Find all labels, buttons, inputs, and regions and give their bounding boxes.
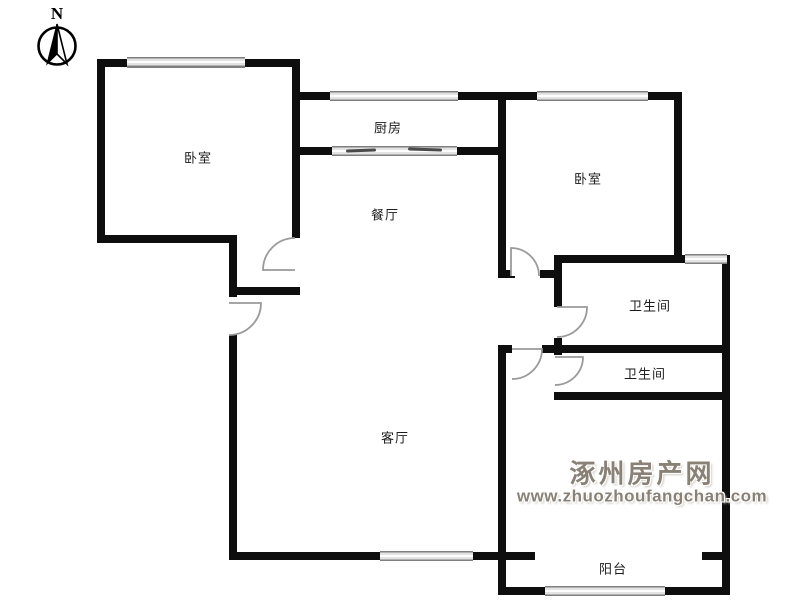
door-arc-dining-vestibule	[263, 238, 295, 270]
compass: N	[30, 2, 90, 87]
room-label-bathroom-top: 卫生间	[629, 296, 671, 315]
door-arc-hall	[512, 349, 542, 379]
wall-segment	[498, 270, 515, 278]
wall-segment	[722, 255, 730, 595]
door-arc-bathroom-top	[557, 307, 587, 337]
floor-plan: 卧室 厨房 餐厅 卧室 卫生间 卫生间 客厅 阳台 涿州房产网 www.zhuo…	[0, 0, 800, 600]
door-arc-bedroom-right	[511, 248, 539, 276]
window	[685, 254, 727, 264]
wall-segment	[542, 345, 730, 353]
room-label-bedroom-right: 卧室	[574, 169, 602, 188]
wall-segment	[702, 552, 730, 560]
window	[537, 91, 648, 101]
wall-segment	[229, 235, 237, 297]
wall-segment	[554, 255, 562, 307]
room-label-kitchen: 厨房	[374, 118, 402, 137]
wall-segment	[97, 59, 105, 241]
wall-segment	[554, 392, 730, 400]
window	[330, 91, 458, 101]
compass-north-letter: N	[51, 4, 64, 23]
wall-segment	[498, 92, 506, 278]
window	[545, 586, 665, 596]
room-label-balcony: 阳台	[599, 559, 627, 578]
room-label-dining: 餐厅	[371, 205, 399, 224]
room-label-bathroom-bottom: 卫生间	[624, 364, 666, 383]
wall-segment	[229, 331, 237, 560]
door-arcs-layer	[0, 0, 800, 600]
wall-segment	[237, 287, 300, 295]
room-label-bedroom-left: 卧室	[184, 148, 212, 167]
wall-segment	[674, 92, 682, 263]
wall-segment	[498, 345, 506, 595]
room-label-living: 客厅	[381, 428, 409, 447]
window	[127, 57, 245, 68]
window	[380, 551, 473, 561]
wall-segment	[554, 338, 562, 355]
wall-segment	[97, 235, 237, 243]
door-arc-bathroom-bottom	[555, 357, 583, 385]
